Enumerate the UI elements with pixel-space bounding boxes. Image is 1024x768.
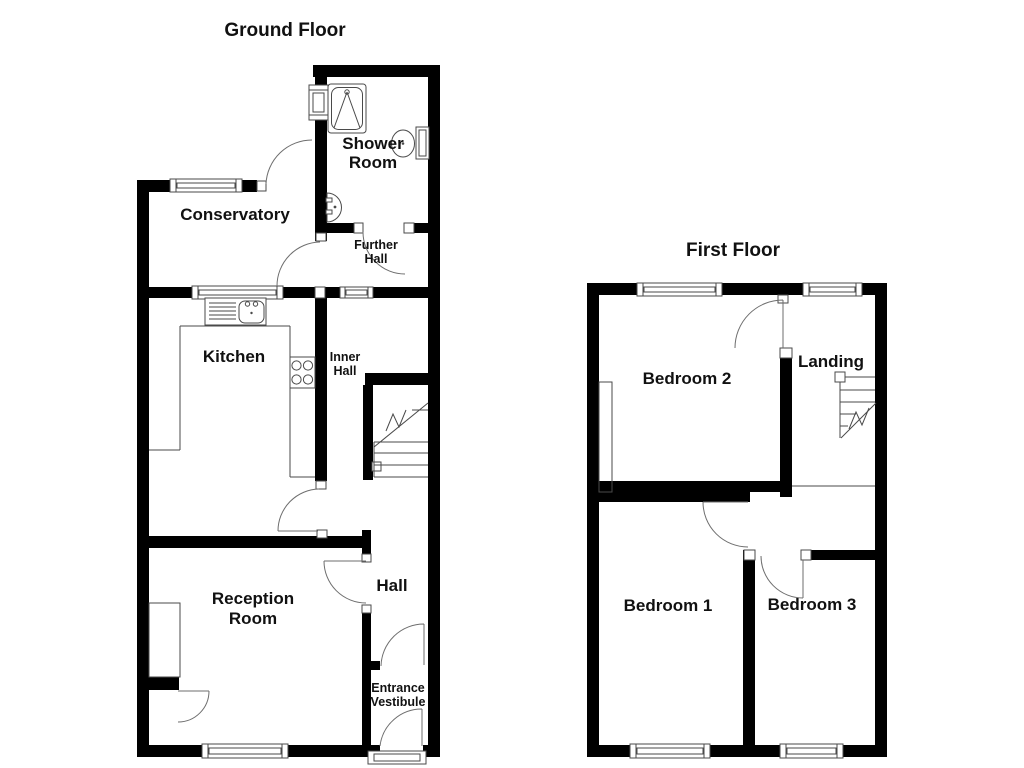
floorplan-page: Ground Floor Shower Room Conservatory Fu… <box>0 0 1024 768</box>
wall-segment <box>149 180 170 192</box>
shower-room-label-2: Room <box>349 153 397 172</box>
wall-segment <box>315 223 355 233</box>
wall-segment <box>811 550 875 560</box>
ground-floor-title: Ground Floor <box>224 20 346 41</box>
shower-tray <box>328 84 366 133</box>
floorplan-drawing: Ground Floor Shower Room Conservatory Fu… <box>0 0 1024 768</box>
wall-segment <box>373 287 428 298</box>
conservatory-door-arc <box>277 242 320 286</box>
door-jamb <box>316 233 326 241</box>
landing-front-window <box>803 283 862 296</box>
wall-segment <box>362 530 371 554</box>
reception-door <box>324 561 366 603</box>
first-floor: First Floor Bedroom 2 Landing Bedroom 1 … <box>587 240 887 758</box>
wall-segment <box>875 283 887 757</box>
wall-segment <box>313 65 440 77</box>
wall-segment <box>315 298 327 481</box>
cupboard-door <box>178 691 209 722</box>
further-hall-window <box>340 287 373 298</box>
reception-recess <box>149 603 180 677</box>
wall-segment <box>428 65 440 757</box>
kitchen-door <box>278 489 319 531</box>
door-jamb <box>404 223 414 233</box>
door-jamb <box>801 550 811 560</box>
vestibule-label-2: Vestibule <box>371 695 426 709</box>
front-door <box>380 709 422 746</box>
further-hall-label-1: Further <box>354 238 398 252</box>
stair-newel <box>372 462 381 471</box>
wall-segment <box>325 287 340 298</box>
bedroom3-label: Bedroom 3 <box>768 595 857 614</box>
bedroom2-recess <box>599 382 612 492</box>
wall-segment <box>598 492 750 502</box>
door-jamb <box>257 181 266 191</box>
bedroom3-window <box>780 744 843 758</box>
vestibule-door <box>381 624 424 666</box>
bedroom2-door <box>735 300 783 348</box>
wall-segment <box>149 745 202 757</box>
entrance-threshold <box>368 751 426 764</box>
door-jamb <box>316 481 326 489</box>
wall-segment <box>843 745 875 757</box>
kitchen-window <box>192 286 283 299</box>
staircase-first <box>792 377 876 486</box>
wall-segment <box>599 745 630 757</box>
door-jamb <box>362 605 371 613</box>
ground-floor-doors <box>178 140 424 746</box>
wall-segment <box>598 481 792 492</box>
wall-segment <box>414 223 428 233</box>
wall-segment <box>587 283 599 757</box>
inner-hall-label-2: Hall <box>334 364 357 378</box>
reception-window <box>202 744 288 758</box>
ground-floor: Ground Floor Shower Room Conservatory Fu… <box>137 20 440 764</box>
basin <box>326 193 342 222</box>
landing-label: Landing <box>798 352 864 371</box>
door-jamb <box>315 287 325 298</box>
stair-newel <box>835 372 845 382</box>
door-jamb <box>354 223 363 233</box>
kitchen-label: Kitchen <box>203 347 265 366</box>
kitchen-sink-unit <box>205 298 266 325</box>
reception-label-2: Room <box>229 609 277 628</box>
inner-hall-label-1: Inner <box>330 350 361 364</box>
door-jamb <box>780 348 792 358</box>
hob <box>290 357 315 388</box>
conservatory-window <box>170 179 242 192</box>
wall-segment <box>137 180 149 757</box>
door-jamb <box>744 550 755 560</box>
wall-segment <box>283 287 315 298</box>
bedroom3-door <box>761 556 803 598</box>
bedroom1-door <box>703 502 748 547</box>
conservatory-garden-door-arc <box>266 140 312 184</box>
shower-room-label-1: Shower <box>342 134 404 153</box>
further-hall-label-2: Hall <box>365 252 388 266</box>
first-floor-title: First Floor <box>686 240 781 261</box>
wall-segment <box>371 661 380 670</box>
wall-segment <box>242 180 257 192</box>
wall-segment <box>149 287 192 298</box>
wall-segment <box>710 745 780 757</box>
wall-segment <box>149 677 179 690</box>
hall-label: Hall <box>376 576 407 595</box>
vestibule-label-1: Entrance <box>371 681 425 695</box>
reception-label-1: Reception <box>212 589 294 608</box>
staircase-ground <box>374 403 428 477</box>
wall-segment <box>722 283 803 295</box>
wall-segment <box>862 283 875 295</box>
bedroom1-label: Bedroom 1 <box>624 596 713 615</box>
wall-segment <box>288 745 380 757</box>
bedroom1-window <box>630 744 710 758</box>
first-floor-jambs <box>744 295 845 560</box>
wall-segment <box>780 348 792 497</box>
bedroom2-label: Bedroom 2 <box>643 369 732 388</box>
wall-segment <box>362 613 371 745</box>
wall-segment <box>365 373 428 385</box>
wall-segment <box>599 283 637 295</box>
bedroom2-front-window <box>637 283 722 296</box>
shower-room-window <box>309 85 328 120</box>
wall-segment <box>743 550 755 745</box>
conservatory-label: Conservatory <box>180 205 290 224</box>
wall-segment <box>149 536 363 548</box>
door-jamb <box>317 530 327 538</box>
